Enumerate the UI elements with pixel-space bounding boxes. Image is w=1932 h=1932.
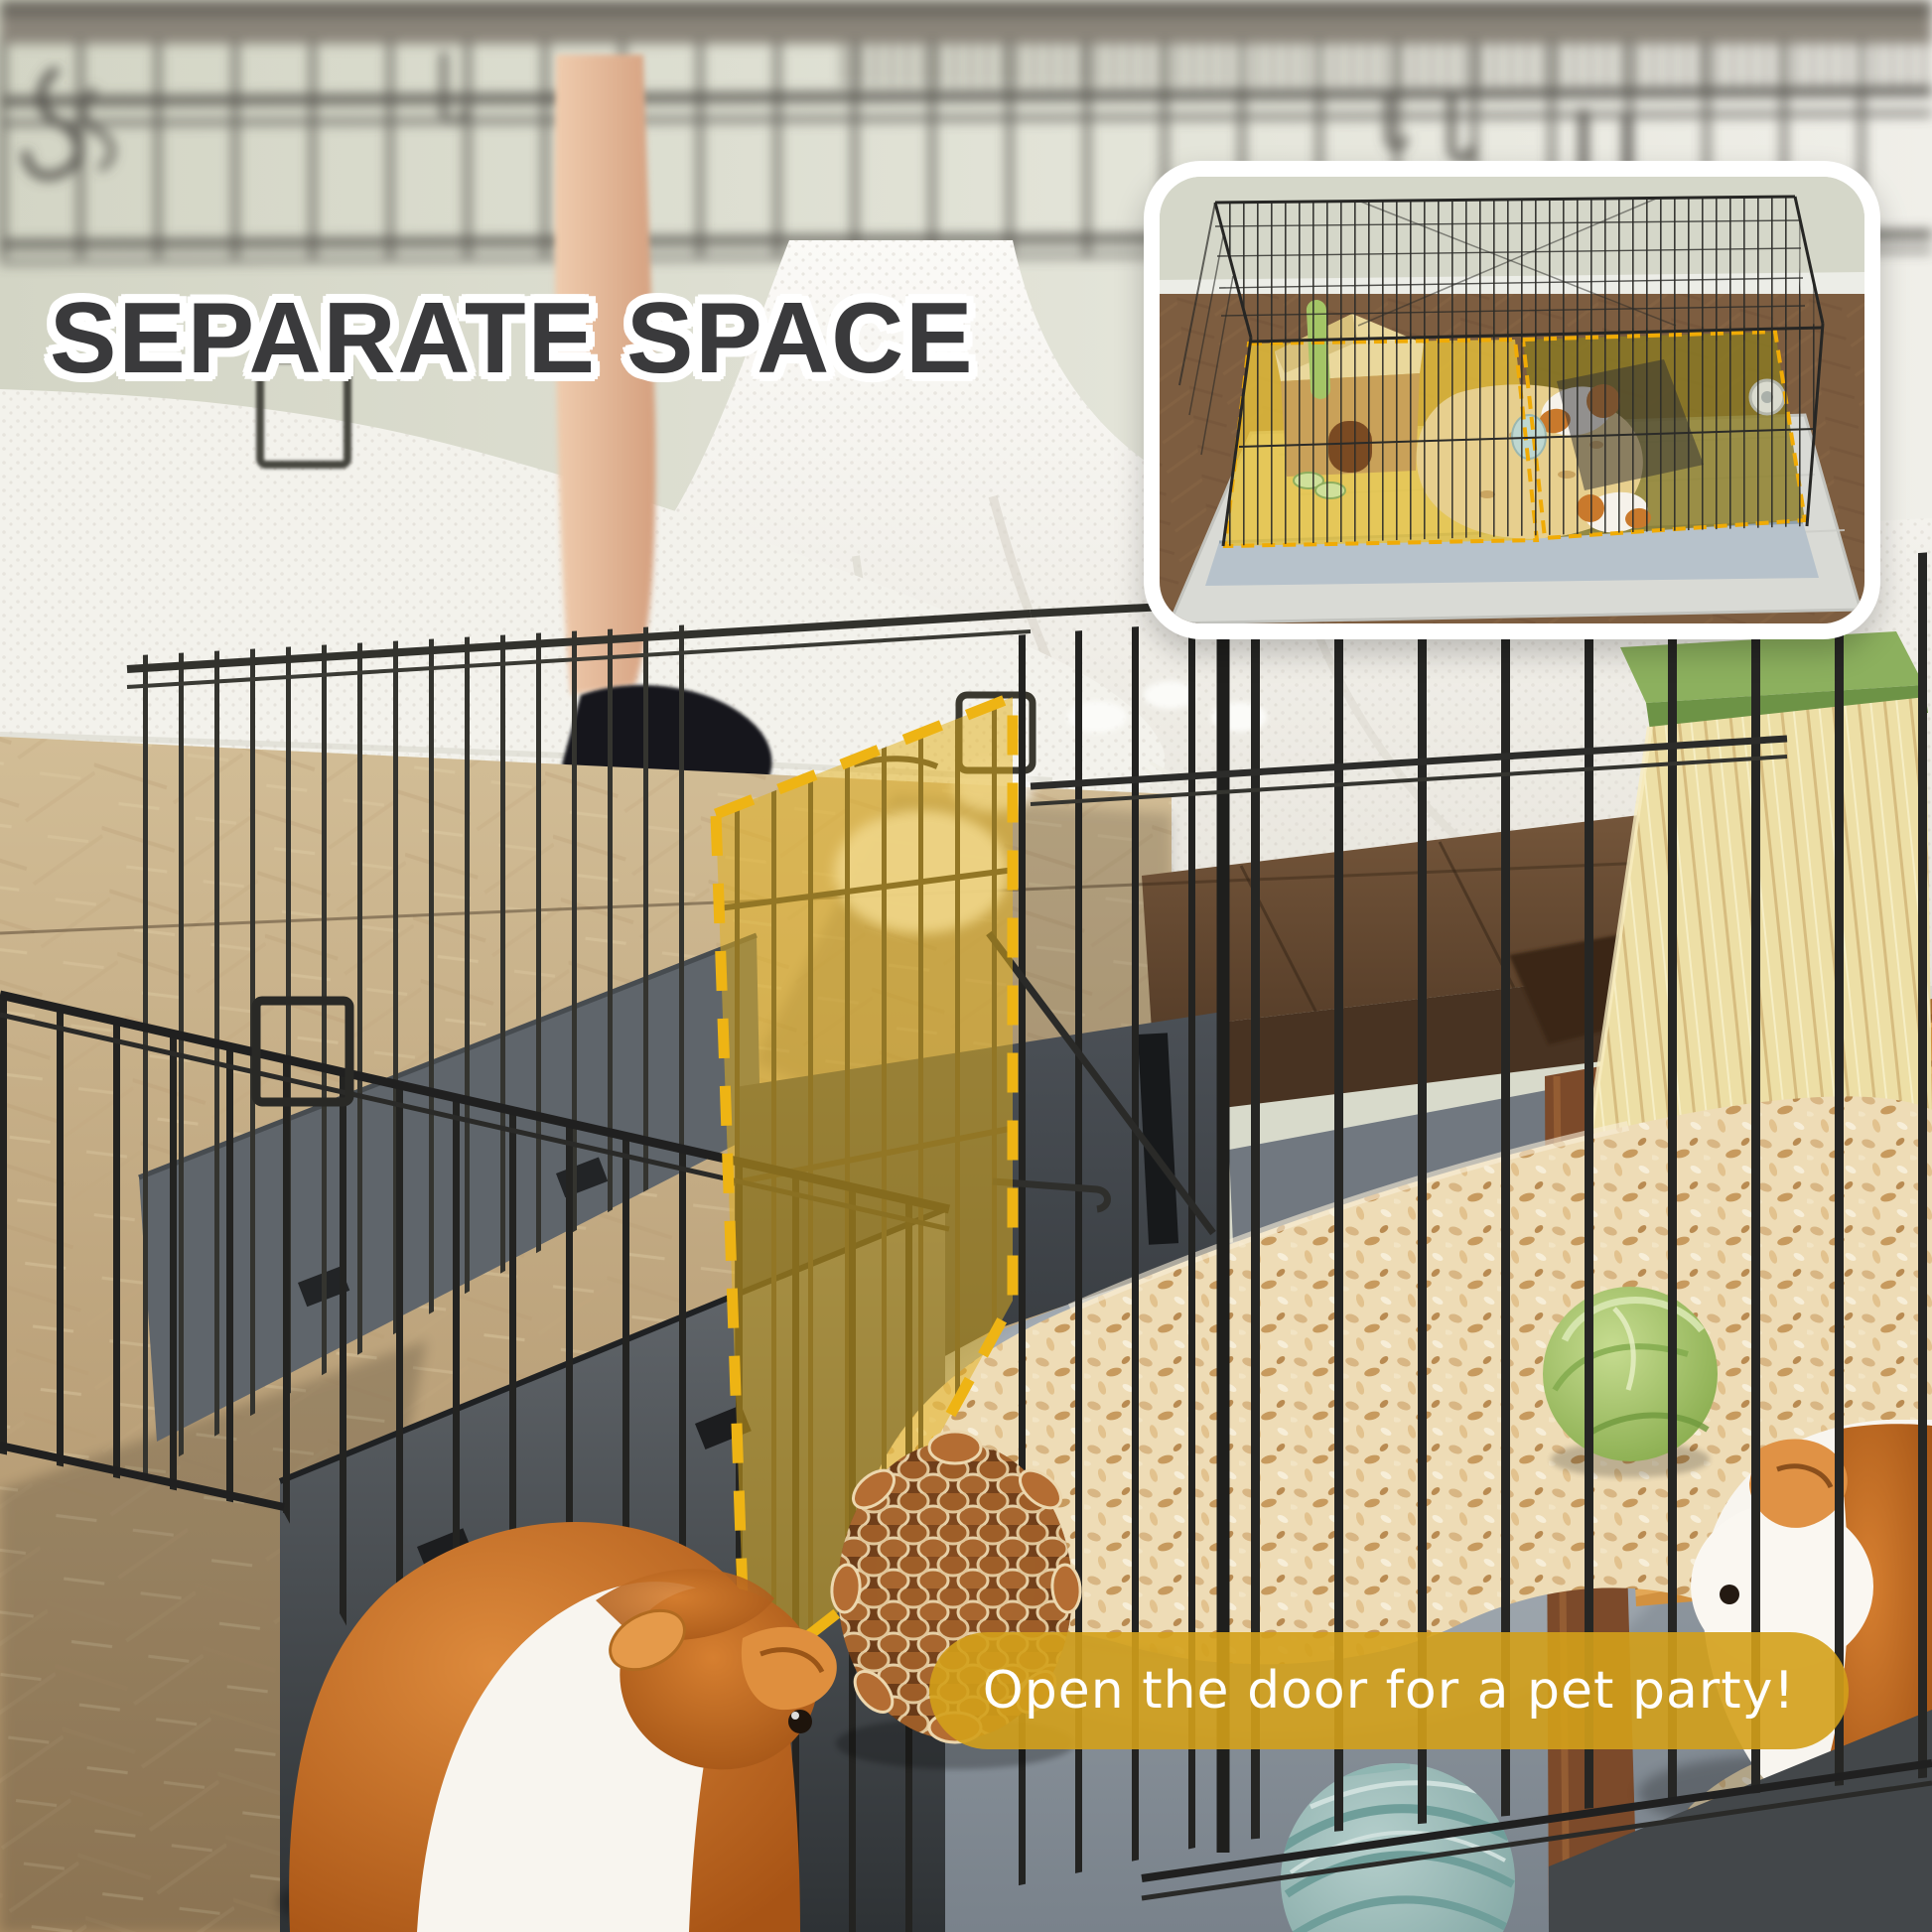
caption-pill: Open the door for a pet party! bbox=[929, 1632, 1849, 1749]
product-photo: SEPARATE SPACE bbox=[0, 0, 1932, 1932]
caption-text: Open the door for a pet party! bbox=[983, 1661, 1795, 1721]
headline: SEPARATE SPACE bbox=[50, 282, 1142, 396]
inset-preview bbox=[1144, 161, 1880, 639]
inset-cage-wires bbox=[1179, 197, 1823, 546]
guinea-pig-left-eye bbox=[788, 1710, 812, 1733]
inset-cage-top-view bbox=[1160, 177, 1864, 623]
